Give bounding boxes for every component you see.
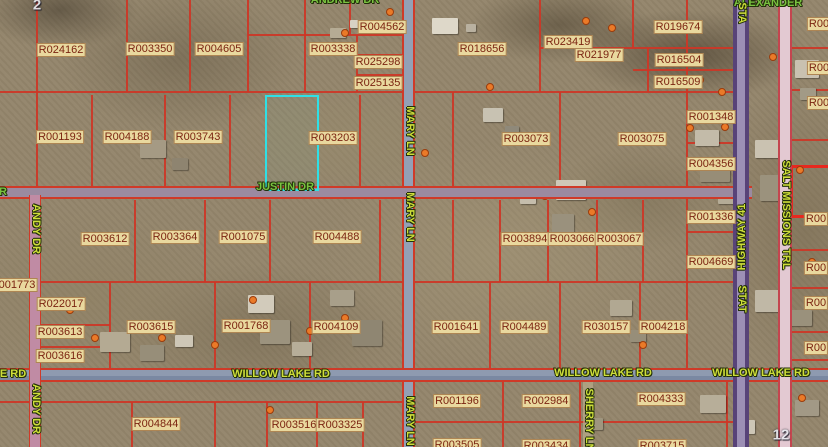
parcel-line <box>214 282 216 368</box>
road-label: SALT MISSIONS TRL <box>780 160 792 269</box>
address-point-dot <box>486 83 494 91</box>
building <box>100 332 130 352</box>
building <box>432 18 458 34</box>
road-label: MARY LN <box>404 192 416 242</box>
parcel-label-partial: R00 <box>804 212 828 226</box>
road-label: WILLOW LAKE RD <box>554 367 652 379</box>
parcel-line <box>632 0 634 48</box>
parcel-line <box>559 92 561 186</box>
parcel-label: R001348 <box>687 110 736 124</box>
building <box>483 108 503 122</box>
parcel-label: R003894 <box>501 232 550 246</box>
parcel-line <box>792 359 828 361</box>
parcel-label: R021977 <box>575 48 624 62</box>
parcel-line <box>229 95 231 186</box>
building <box>795 400 819 416</box>
road-label: ANDY DR <box>30 384 42 434</box>
parcel-line <box>792 331 828 333</box>
road-label: MARY LN <box>404 396 416 446</box>
parcel-label: R004218 <box>639 320 688 334</box>
parcel-line <box>452 200 454 282</box>
address-point-dot <box>582 17 590 25</box>
parcel-label: R003203 <box>309 131 358 145</box>
parcel-label: R030157 <box>582 320 631 334</box>
parcel-label: R004356 <box>687 157 736 171</box>
parcel-label: R025135 <box>354 76 403 90</box>
parcel-line <box>792 249 828 251</box>
parcel-label: R003743 <box>174 130 223 144</box>
parcel-line <box>415 91 745 93</box>
parcel-label: R004489 <box>500 320 549 334</box>
parcel-label: R003612 <box>81 232 130 246</box>
address-point-dot <box>718 88 726 96</box>
road-justin-dr <box>0 186 752 199</box>
road-label: HIGHWAY 41 <box>736 204 748 271</box>
parcel-line <box>304 0 306 92</box>
parcel-label-partial: R00 <box>807 96 828 110</box>
parcel-label: R001196 <box>433 394 481 408</box>
address-point-dot <box>721 123 729 131</box>
parcel-line <box>726 382 728 447</box>
parcel-label-partial: R00 <box>804 341 828 355</box>
parcel-line <box>214 402 216 447</box>
section-number: 2 <box>33 0 41 14</box>
parcel-line <box>247 0 249 92</box>
parcel-label: R003516 <box>270 418 319 432</box>
address-point-dot <box>249 296 257 304</box>
address-point-dot <box>796 166 804 174</box>
parcel-label: R003434 <box>522 439 571 447</box>
address-point-dot <box>608 24 616 32</box>
parcel-label: R004844 <box>132 417 181 431</box>
parcel-label: R025298 <box>354 55 403 69</box>
address-point-dot <box>798 394 806 402</box>
parcel-line <box>792 139 828 141</box>
parcel-label: R003715 <box>638 439 687 447</box>
building <box>466 24 476 32</box>
address-point-dot <box>266 406 274 414</box>
parcel-label: R003350 <box>126 42 175 56</box>
parcel-label: R024162 <box>37 43 86 57</box>
parcel-line <box>489 282 491 368</box>
highlighted-parcel-boundary <box>790 165 828 218</box>
parcel-label: R004562 <box>358 20 407 34</box>
parcel-line <box>539 0 541 92</box>
parcel-line <box>379 200 381 282</box>
parcel-line <box>415 281 745 283</box>
parcel-label: R002984 <box>522 394 571 408</box>
parcel-label: R003066 <box>548 232 597 246</box>
parcel-label: R003505 <box>433 438 482 447</box>
parcel-label: R003067 <box>595 232 644 246</box>
building <box>292 342 312 356</box>
parcel-line <box>189 0 191 92</box>
parcel-line <box>633 69 745 71</box>
road-label: ANDY DR <box>30 204 42 254</box>
parcel-line <box>0 401 402 403</box>
parcel-line <box>792 287 828 289</box>
address-point-dot <box>386 8 394 16</box>
parcel-line <box>36 0 38 195</box>
road-label: ANDREW DR <box>311 0 379 6</box>
parcel-label: R016504 <box>655 53 704 67</box>
parcel-label: R016509 <box>654 75 703 89</box>
parcel-line <box>0 281 402 283</box>
road-label: R <box>0 186 7 198</box>
parcel-label-partial: 001773 <box>0 278 37 292</box>
road-label: JUSTIN DR <box>256 181 314 193</box>
parcel-line <box>269 200 271 282</box>
parcel-label-partial: R00 <box>807 17 828 31</box>
road-label: MARY LN <box>404 106 416 156</box>
address-point-dot <box>769 53 777 61</box>
address-point-dot <box>639 341 647 349</box>
parcel-label: R023419 <box>544 35 593 49</box>
road-label: STAT <box>736 285 748 312</box>
parcel-line <box>579 382 581 447</box>
parcel-line <box>415 421 745 423</box>
section-number: 12 <box>773 427 790 444</box>
parcel-label: R001075 <box>219 230 268 244</box>
building <box>760 175 780 201</box>
parcel-label: R003613 <box>36 325 85 339</box>
address-point-dot <box>588 208 596 216</box>
parcel-line <box>452 92 454 186</box>
road-label: WILLOW LAKE RD <box>232 368 330 380</box>
parcel-line <box>91 95 93 186</box>
building <box>330 290 354 306</box>
parcel-label: R001193 <box>36 130 84 144</box>
parcel-label: R004605 <box>195 42 244 56</box>
parcel-label-partial: R00 <box>807 61 828 75</box>
parcel-label: R003338 <box>309 42 358 56</box>
parcel-label: R004488 <box>313 230 362 244</box>
road-label: E RD <box>0 368 26 380</box>
map-canvas[interactable]: R024162R003350R004605R003338R004562R0252… <box>0 0 828 447</box>
parcel-label: R019674 <box>654 20 703 34</box>
parcel-label: R004333 <box>637 392 686 406</box>
parcel-label: R001641 <box>432 320 481 334</box>
parcel-line <box>0 91 402 93</box>
address-point-dot <box>158 334 166 342</box>
parcel-line <box>792 47 828 49</box>
parcel-label: R003075 <box>618 132 667 146</box>
road-willow-lake-rd <box>0 368 828 382</box>
building <box>790 310 812 326</box>
address-point-dot <box>686 124 694 132</box>
parcel-label: R003364 <box>151 230 200 244</box>
parcel-label: R018656 <box>458 42 507 56</box>
parcel-label: R003073 <box>502 132 551 146</box>
address-point-dot <box>91 334 99 342</box>
building <box>700 395 726 413</box>
building <box>175 335 193 347</box>
road-label: WILLOW LAKE RD <box>712 367 810 379</box>
parcel-label: R003615 <box>127 320 176 334</box>
parcel-label: R022017 <box>37 297 86 311</box>
parcel-label: R003616 <box>36 349 85 363</box>
parcel-line <box>134 200 136 282</box>
building <box>610 300 632 316</box>
parcel-label: R004669 <box>687 255 736 269</box>
parcel-label: R004109 <box>312 320 361 334</box>
parcel-line <box>502 382 504 447</box>
parcel-label-partial: R00 <box>804 261 828 275</box>
parcel-label: R004188 <box>103 130 152 144</box>
parcel-line <box>359 95 361 186</box>
road-label: STA <box>736 2 748 23</box>
parcel-line <box>248 34 402 36</box>
parcel-line <box>204 200 206 282</box>
road-label: SHERRY LN <box>583 389 595 447</box>
building <box>140 345 164 361</box>
parcel-label-partial: R00 <box>804 296 828 310</box>
building <box>172 158 188 170</box>
parcel-label: R003325 <box>316 418 365 432</box>
parcel-label: R001336 <box>687 210 736 224</box>
parcel-label: R001768 <box>222 319 271 333</box>
parcel-line <box>559 282 561 368</box>
address-point-dot <box>341 29 349 37</box>
address-point-dot <box>421 149 429 157</box>
address-point-dot <box>211 341 219 349</box>
building <box>695 130 719 146</box>
